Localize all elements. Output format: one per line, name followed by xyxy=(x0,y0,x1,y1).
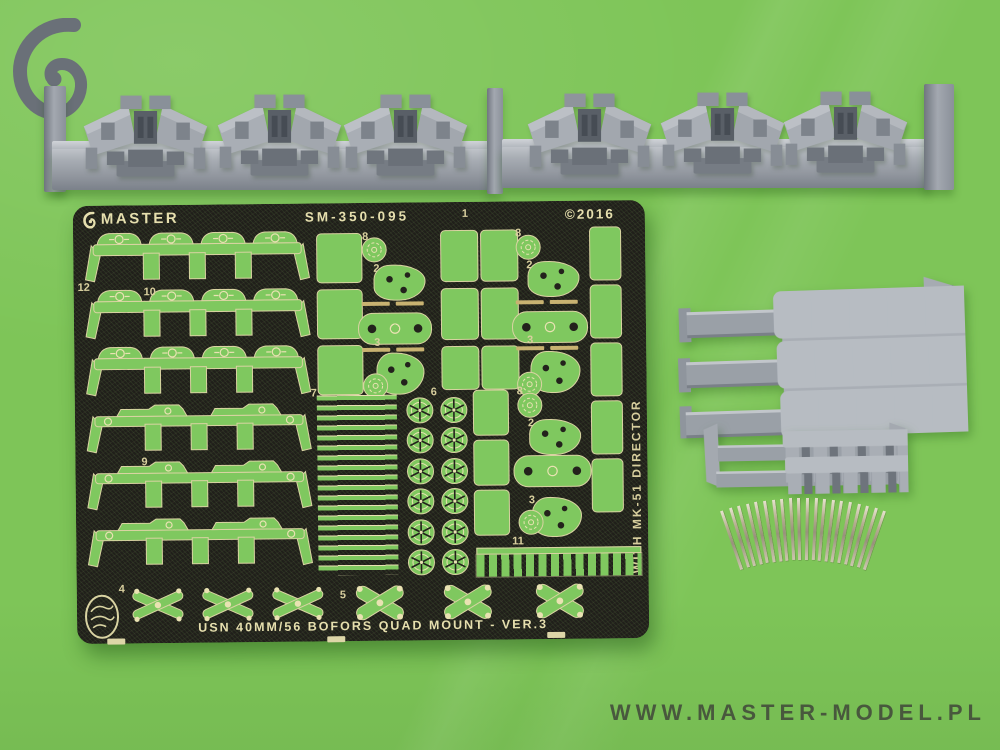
shield-part xyxy=(81,229,314,287)
resin-rack-large xyxy=(676,274,969,441)
gun-mount-casting xyxy=(522,91,657,181)
cross-part xyxy=(349,580,411,625)
oval-part xyxy=(440,518,470,546)
panel-part xyxy=(317,289,364,339)
brass-strip xyxy=(396,347,424,351)
oval-part xyxy=(440,487,470,515)
oval-part xyxy=(406,518,436,546)
gun-mount-casting xyxy=(338,92,473,182)
oval-part xyxy=(406,487,436,515)
detail-part xyxy=(513,455,591,488)
brass-strip xyxy=(362,302,390,306)
barrel-set xyxy=(716,492,896,572)
panel-part xyxy=(591,400,624,454)
cross-part xyxy=(267,581,329,626)
brass-strip xyxy=(516,300,544,304)
oval-part xyxy=(405,457,435,485)
brand-name: MASTER xyxy=(101,210,180,228)
ring-part xyxy=(361,237,387,263)
shield-part xyxy=(84,514,317,572)
oval-part xyxy=(440,548,470,576)
copyright-text: ©2016 xyxy=(565,206,615,222)
detail-part xyxy=(358,312,432,345)
part-label: 3 xyxy=(527,334,533,346)
part-label: 9 xyxy=(141,456,147,468)
strip-end-plate xyxy=(487,88,503,194)
brass-strip xyxy=(550,300,578,304)
panel-part xyxy=(590,284,623,338)
gun-mount-casting xyxy=(78,93,213,183)
panel-part xyxy=(441,288,480,340)
oval-part xyxy=(439,396,469,424)
ring-part xyxy=(517,392,543,418)
brass-strip xyxy=(516,346,544,350)
barrel xyxy=(805,498,809,560)
oval-part xyxy=(439,426,469,454)
panel-part xyxy=(589,226,622,280)
cross-part xyxy=(127,583,189,628)
panel-part xyxy=(590,342,623,396)
gun-mount-casting xyxy=(212,92,347,182)
watermark: WWW.MASTER-MODEL.PL xyxy=(610,700,986,726)
oval-part xyxy=(406,548,436,576)
photo-stage: MASTER SM-350-095 1 ©2016 WITH MK-51 DIR… xyxy=(0,0,1000,750)
part-label: 11 xyxy=(512,535,524,547)
brass-strip xyxy=(550,346,578,350)
sprue-tab xyxy=(327,636,345,642)
barrel xyxy=(789,498,795,560)
shield-part xyxy=(83,400,316,458)
part-label: 12 xyxy=(78,282,90,294)
comb-part-teeth xyxy=(476,553,641,577)
panel-part xyxy=(481,345,519,389)
cross-part xyxy=(437,580,499,625)
part-label: 1 xyxy=(462,208,468,220)
strip-end-plate xyxy=(924,84,954,190)
part-label: 5 xyxy=(340,589,346,601)
ladder-part xyxy=(317,395,399,576)
sprue-tab xyxy=(107,638,125,644)
panel-part xyxy=(440,230,479,282)
brand-spiral-icon xyxy=(83,212,98,229)
panel-part xyxy=(441,346,479,390)
barrel xyxy=(811,498,817,560)
cross-part xyxy=(197,582,259,627)
panel-part xyxy=(480,229,519,281)
panel-part xyxy=(473,439,509,485)
shield-part xyxy=(82,343,315,401)
oval-part xyxy=(439,457,469,485)
part-label: 10 xyxy=(144,286,156,298)
product-code: SM-350-095 xyxy=(305,208,409,224)
brass-strip xyxy=(396,301,424,305)
shield-part xyxy=(83,457,316,515)
panel-part xyxy=(316,233,363,283)
pe-fret: MASTER SM-350-095 1 ©2016 WITH MK-51 DIR… xyxy=(73,200,650,644)
panel-part xyxy=(474,489,510,535)
barrel xyxy=(797,498,801,560)
gun-mount-casting xyxy=(778,89,913,179)
detail-part xyxy=(512,311,588,344)
sprue-tab xyxy=(547,632,565,638)
ring-part xyxy=(518,509,544,535)
part-label: 4 xyxy=(119,583,125,595)
ring-part xyxy=(515,234,541,260)
cross-part xyxy=(529,579,591,624)
part-label: 3 xyxy=(374,337,380,349)
oval-part xyxy=(405,426,435,454)
oval-part xyxy=(405,396,435,424)
gun-mount-casting xyxy=(655,90,790,180)
north-star-badge xyxy=(83,594,121,640)
shield-part xyxy=(82,286,315,344)
resin-rack-small xyxy=(701,420,908,496)
panel-part xyxy=(317,345,364,395)
panel-part xyxy=(591,458,624,512)
barrel xyxy=(780,499,788,561)
panel-part xyxy=(473,389,509,435)
